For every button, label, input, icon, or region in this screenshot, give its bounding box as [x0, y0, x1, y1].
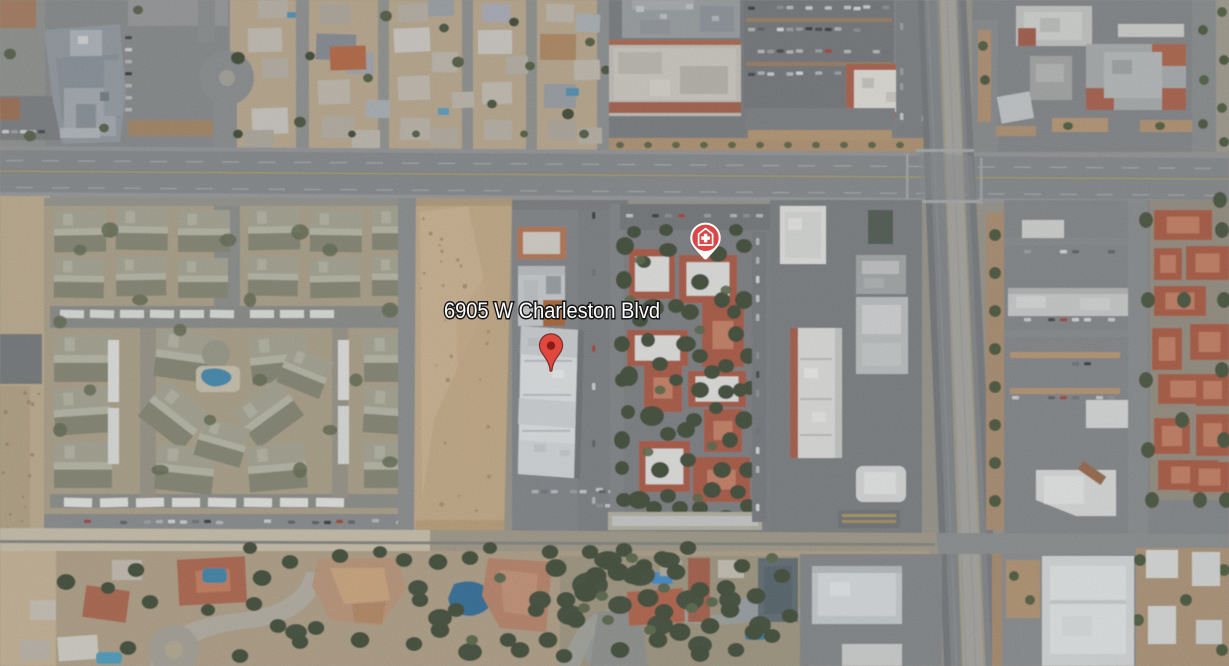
- svg-text:6905 W Charleston Blvd: 6905 W Charleston Blvd: [444, 298, 660, 323]
